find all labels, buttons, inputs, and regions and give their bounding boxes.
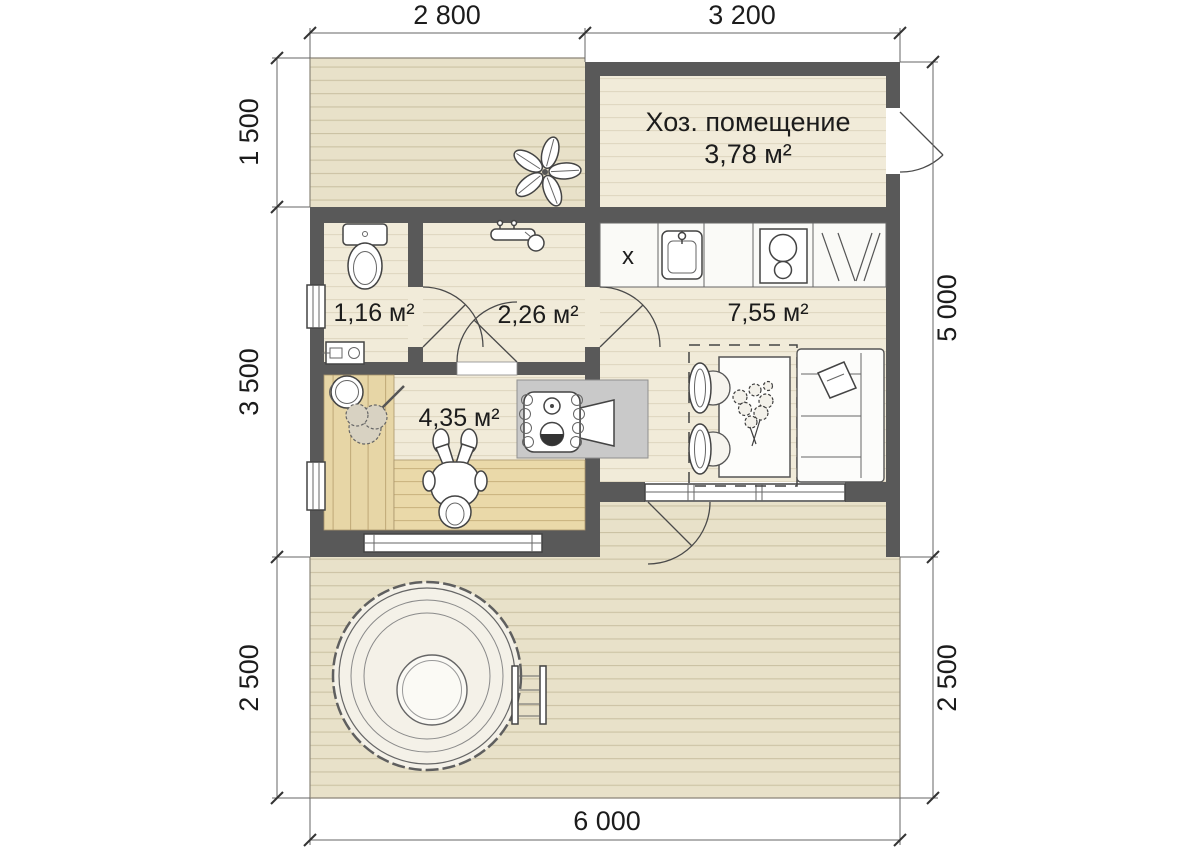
sauna-area: 4,35 м² (418, 404, 499, 432)
dim-right-top: 5 000 (932, 274, 962, 342)
utility-room-name: Хоз. помещение (646, 107, 851, 137)
hot-tub (333, 582, 521, 770)
sofa (797, 349, 884, 482)
sauna-lying-bench (394, 460, 585, 530)
dim-top-right: 3 200 (708, 0, 776, 30)
dim-top-left: 2 800 (413, 0, 481, 30)
sauna-side-window (307, 462, 325, 510)
dim-left-top: 1 500 (234, 98, 264, 166)
floor-plan-canvas: х (0, 0, 1200, 848)
utility-room-area: 3,78 м² (704, 139, 792, 169)
washroom-door-opening (585, 287, 600, 347)
dim-right-bottom: 2 500 (932, 644, 962, 712)
dim-bottom: 6 000 (573, 806, 641, 836)
wc-window (307, 285, 325, 328)
entrance-door-opening (886, 108, 900, 174)
hob (760, 229, 807, 283)
porch-notch-deck (600, 502, 886, 557)
wc-area: 1,16 м² (333, 299, 414, 327)
sauna-bottom-window (364, 534, 542, 552)
dim-left-mid: 3 500 (234, 348, 264, 416)
floor-plan-drawing: х (0, 0, 1200, 848)
sauna-stove-area (517, 380, 648, 458)
kitchen-living-area: 7,55 м² (727, 299, 808, 327)
kitchen-counter: х (600, 223, 886, 287)
stove-fire-tunnel (580, 400, 614, 446)
counter-marker-label: х (622, 243, 634, 270)
sauna-stove (520, 392, 585, 452)
kitchen-sink (662, 231, 702, 279)
sauna-door-opening (457, 362, 517, 375)
water-heater (322, 342, 364, 364)
dim-left-bottom: 2 500 (234, 644, 264, 712)
entrance-door-swing (900, 112, 943, 172)
washroom-area: 2,26 м² (497, 301, 578, 329)
